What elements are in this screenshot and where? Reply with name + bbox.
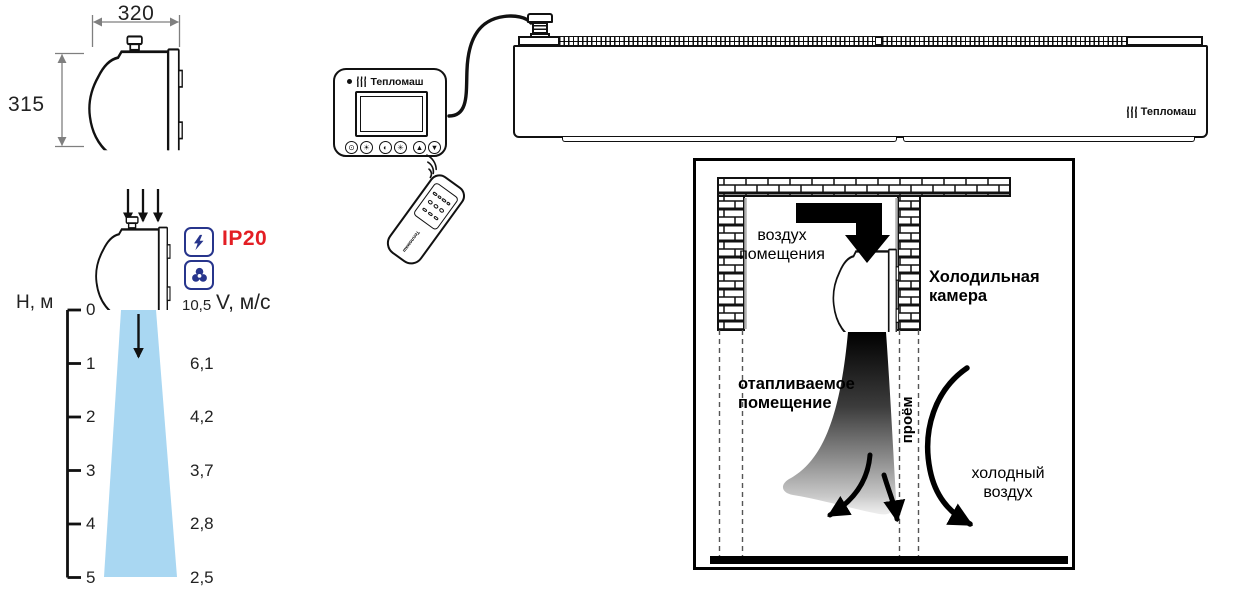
air-jet-cone [104,310,177,577]
controller-display[interactable] [355,91,428,137]
mode-button[interactable]: ◐ [379,141,392,154]
tick-2: 2 [86,407,95,427]
ip-rating: IP20 [222,227,267,251]
dimension-drawing [55,15,182,162]
remote-brand: Тепломаш [396,223,426,260]
cold-chamber-label: Холодильная камера [929,268,1079,307]
cold-air-label: холодный воздух [949,465,1067,503]
room-air-label: воздух помещения [713,227,851,265]
tick-1: 1 [86,354,95,374]
controller-brand-text: Тепломаш [370,76,423,88]
velocity-3: 3,7 [190,461,214,481]
lightning-icon [190,233,208,252]
curtain-bottom-trim-right [903,137,1195,142]
teplomash-flame-icon [1126,105,1138,119]
height-dimension: 315 [8,93,52,117]
velocity-4: 2,8 [190,514,214,534]
light-button[interactable]: ☀ [360,141,373,154]
air-curtain-datasheet: 320 315 H, м V, м/с 0 1 2 3 4 5 10,5 6,1… [0,0,1239,593]
velocity-2: 4,2 [190,407,214,427]
fan-button[interactable]: ✳ [394,141,407,154]
controller-brand: Тепломаш [335,75,445,88]
schematic-art [696,161,1072,567]
tick-5: 5 [86,568,95,588]
velocity-0: 10,5 [182,297,211,314]
installation-schematic: воздух помещения Холодильная камера отап… [693,158,1075,570]
tick-0: 0 [86,300,95,320]
warm-air-jet [783,332,896,514]
curtain-body [513,45,1208,138]
velocity-axis-label: V, м/с [216,291,271,315]
controller-display-inner [360,96,423,132]
wall-controller: Тепломаш ⊙ ☀ ◐ ✳ ▲ ▼ [333,68,447,157]
velocity-5: 2,5 [190,568,214,588]
velocity-1: 6,1 [190,354,214,374]
height-axis-label: H, м [16,292,53,314]
tick-3: 3 [86,461,95,481]
unit-side-profile [89,36,182,162]
airflow-diagram [68,189,178,578]
curtain-brand-text: Тепломаш [1141,106,1197,118]
curtain-brand: Тепломаш [1120,105,1202,119]
remote-brand-text: Тепломаш [401,229,421,253]
fan-badge [184,260,214,290]
teplomash-flame-icon [356,75,367,88]
tick-4: 4 [86,514,95,534]
unit-profile-small [96,217,170,320]
height-axis [68,310,82,578]
opening-label: проём [899,385,917,455]
width-dimension: 320 [100,2,172,26]
floor [710,556,1068,564]
fan-icon [190,266,209,285]
electric-badge [184,227,214,257]
power-button[interactable]: ⊙ [345,141,358,154]
heated-room-label: отапливаемое помещение [738,375,893,414]
curtain-bottom-trim-left [562,137,897,142]
